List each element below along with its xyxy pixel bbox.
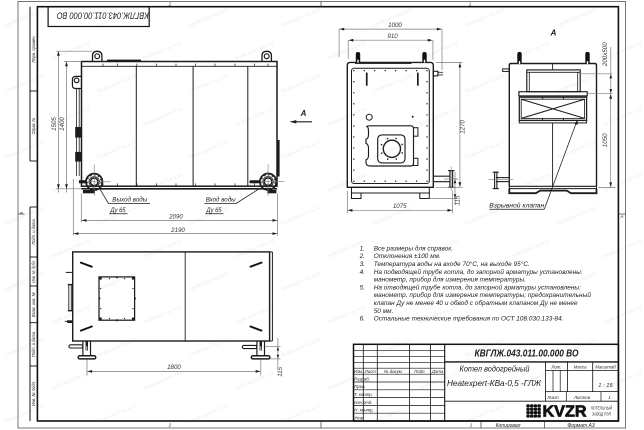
svg-text:Масштаб: Масштаб bbox=[595, 364, 616, 369]
svg-text:манометр, прибор для измерения: манометр, прибор для измерения температу… bbox=[374, 276, 526, 284]
svg-text:1000: 1000 bbox=[388, 22, 402, 29]
svg-text:Изм.: Изм. bbox=[354, 369, 363, 374]
svg-text:1075: 1075 bbox=[393, 203, 407, 210]
svg-text:1.: 1. bbox=[360, 245, 365, 252]
svg-text:2: 2 bbox=[168, 2, 172, 7]
svg-text:Лит.: Лит. bbox=[550, 364, 561, 369]
svg-text:Масса: Масса bbox=[574, 364, 588, 369]
svg-text:КВГЛЖ.043.011.00.000 ВО: КВГЛЖ.043.011.00.000 ВО bbox=[475, 349, 579, 360]
svg-text:КОТЕЛЬНЫЙ: КОТЕЛЬНЫЙ bbox=[591, 406, 612, 411]
svg-text:Разраб.: Разраб. bbox=[354, 376, 370, 381]
svg-text:А: А bbox=[300, 109, 307, 118]
svg-text:Подп.: Подп. bbox=[414, 369, 425, 374]
svg-text:КВГЛЖ.043.011.00.000 ВО: КВГЛЖ.043.011.00.000 ВО bbox=[56, 10, 148, 21]
svg-text:200х500: 200х500 bbox=[602, 42, 609, 67]
svg-text:Т. контр.: Т. контр. bbox=[354, 392, 373, 397]
svg-text:Подп. и дата: Подп. и дата bbox=[31, 331, 36, 357]
svg-text:Дата: Дата bbox=[431, 369, 444, 374]
svg-text:Выход воды: Выход воды bbox=[112, 196, 147, 204]
svg-text:2.: 2. bbox=[359, 253, 365, 260]
svg-text:Котел водогрейный: Котел водогрейный bbox=[460, 364, 530, 374]
svg-text:А: А bbox=[619, 214, 623, 219]
svg-text:Лист: Лист bbox=[546, 395, 559, 400]
svg-text:Взам. инв. №: Взам. инв. № bbox=[31, 292, 36, 317]
svg-text:Подп. и дата: Подп. и дата bbox=[31, 219, 36, 245]
svg-text:Утв.: Утв. bbox=[354, 415, 364, 420]
svg-text:Листов: Листов bbox=[573, 395, 591, 400]
svg-text:3.: 3. bbox=[360, 261, 365, 268]
svg-text:5.: 5. bbox=[360, 284, 365, 291]
svg-text:Ду 65: Ду 65 bbox=[110, 207, 126, 214]
svg-text:Остальные технические требован: Остальные технические требования по ОСТ … bbox=[374, 315, 564, 323]
svg-text:Взрывной клапан: Взрывной клапан bbox=[489, 202, 544, 210]
svg-text:4.: 4. bbox=[360, 269, 365, 276]
svg-text:Формат А3: Формат А3 bbox=[567, 423, 595, 429]
svg-text:На отводящей трубе котла, до з: На отводящей трубе котла, до запорной ар… bbox=[374, 283, 581, 291]
svg-text:№ докум.: № докум. bbox=[384, 369, 403, 374]
svg-text:Температура воды на входе 70°С: Температура воды на входе 70°С, на выход… bbox=[374, 260, 530, 268]
svg-text:А: А bbox=[549, 29, 556, 38]
svg-text:А: А bbox=[19, 211, 24, 215]
svg-text:Лист: Лист bbox=[364, 369, 376, 374]
svg-text:Отклонения ±100 мм.: Отклонения ±100 мм. bbox=[374, 253, 441, 260]
svg-text:Вход воды: Вход воды bbox=[206, 196, 236, 204]
svg-text:2190: 2190 bbox=[170, 227, 185, 234]
svg-text:Инв. № подл.: Инв. № подл. bbox=[31, 381, 36, 406]
svg-text:1800: 1800 bbox=[167, 364, 181, 371]
svg-text:ЗАВОД РЭП: ЗАВОД РЭП bbox=[592, 412, 612, 417]
svg-text:1505: 1505 bbox=[51, 117, 58, 131]
svg-text:клапан Ду не менее 40 и обвод: клапан Ду не менее 40 и обвод с обратным… bbox=[374, 299, 578, 307]
svg-text:Нач.отд.: Нач.отд. bbox=[354, 400, 372, 405]
svg-text:Пров.: Пров. bbox=[354, 384, 365, 389]
svg-text:Копировал: Копировал bbox=[496, 423, 521, 429]
svg-text:Ду 65: Ду 65 bbox=[206, 207, 222, 214]
svg-text:манометр, прибор для измерения: манометр, прибор для измерения температу… bbox=[374, 291, 592, 299]
svg-text:2090: 2090 bbox=[168, 214, 183, 221]
svg-text:На подводящей трубе котла, до: На подводящей трубе котла, до запорной а… bbox=[374, 268, 583, 276]
svg-text:1400: 1400 bbox=[59, 117, 66, 131]
svg-text:910: 910 bbox=[387, 33, 398, 40]
svg-text:115: 115 bbox=[454, 195, 461, 205]
svg-text:Справ. №: Справ. № bbox=[31, 117, 36, 134]
svg-text:Н. контр.: Н. контр. bbox=[354, 408, 373, 413]
svg-text:Инв. № дубл.: Инв. № дубл. bbox=[31, 260, 36, 283]
svg-text:KVZR: KVZR bbox=[543, 404, 587, 421]
svg-text:Heatexpert-КВа-0,5 -ГЛЖ: Heatexpert-КВа-0,5 -ГЛЖ bbox=[447, 378, 542, 388]
svg-text:1 : 15: 1 : 15 bbox=[598, 383, 613, 389]
svg-text:Перв. примен.: Перв. примен. bbox=[31, 35, 36, 62]
svg-text:6.: 6. bbox=[360, 316, 365, 323]
svg-text:115: 115 bbox=[277, 366, 284, 376]
svg-text:1270: 1270 bbox=[460, 119, 467, 133]
svg-text:1050: 1050 bbox=[602, 133, 609, 147]
svg-text:2: 2 bbox=[168, 423, 172, 428]
svg-text:Все размеры для справок.: Все размеры для справок. bbox=[374, 244, 454, 252]
svg-text:50 мм.: 50 мм. bbox=[374, 308, 394, 315]
